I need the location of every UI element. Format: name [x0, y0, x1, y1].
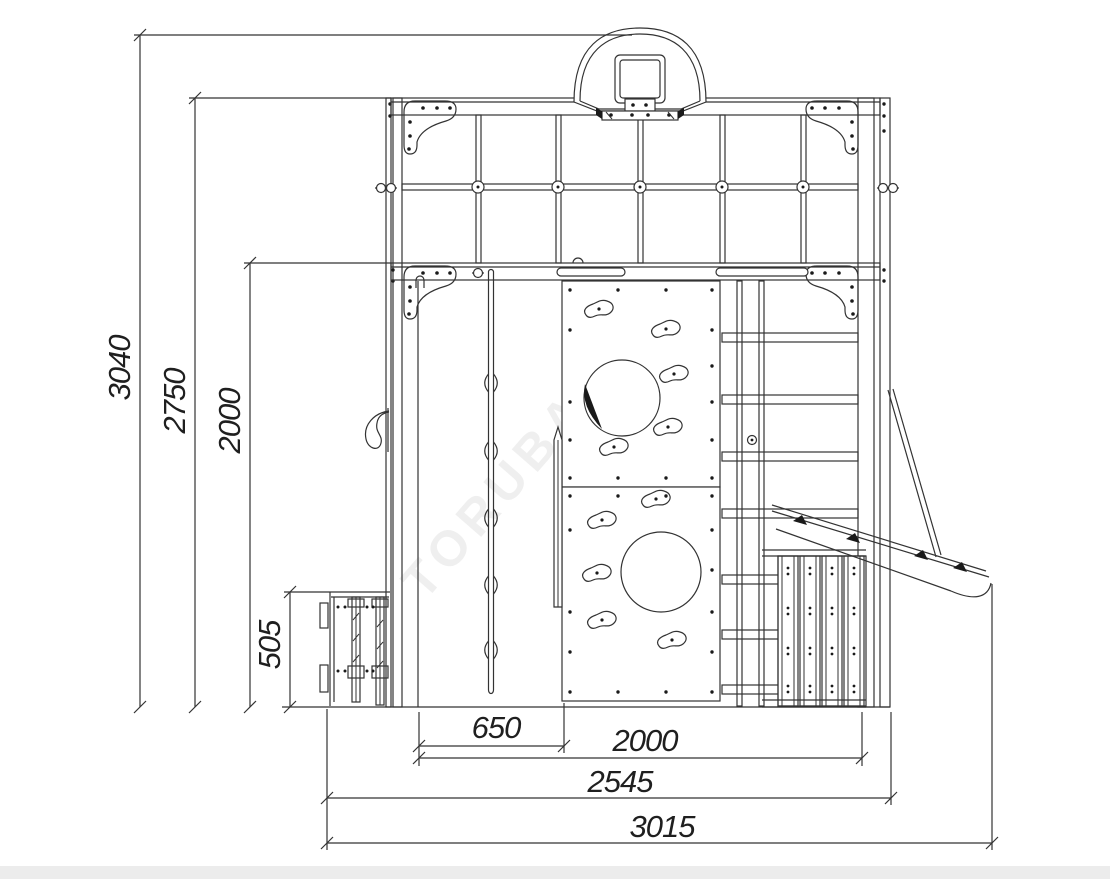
playground-elevation-drawing: TORUBA.RU [0, 0, 1110, 879]
floor-board-strip [557, 268, 625, 276]
dim-label-frame-width: 2000 [612, 723, 679, 758]
structure [282, 28, 991, 707]
slat-panel [762, 550, 866, 707]
dim-label-overall-height: 3040 [102, 335, 137, 401]
rim-bracket [625, 99, 655, 111]
floor-board-strip [716, 268, 808, 276]
slide-support-brace [888, 389, 941, 557]
technical-drawing-page: TORUBA.RU [0, 0, 1110, 879]
dim-label-overall-width: 3015 [630, 809, 697, 844]
dim-label-floor-height: 2000 [212, 388, 247, 455]
rim-plate [602, 111, 678, 120]
dim-label-body-width: 2545 [587, 764, 655, 799]
dim-label-porch-width: 650 [472, 710, 521, 745]
climbing-wall-upper-panel [562, 281, 720, 487]
basketball-backboard [574, 28, 706, 120]
dim-label-frame-height: 2750 [157, 368, 192, 435]
sandbox [284, 592, 390, 706]
side-batten [554, 427, 562, 607]
dim-label-sandbox-height: 505 [252, 619, 287, 669]
climbing-net [375, 115, 899, 263]
page-edge-strip [0, 866, 1110, 879]
climbing-wall-lower-panel [562, 487, 720, 701]
